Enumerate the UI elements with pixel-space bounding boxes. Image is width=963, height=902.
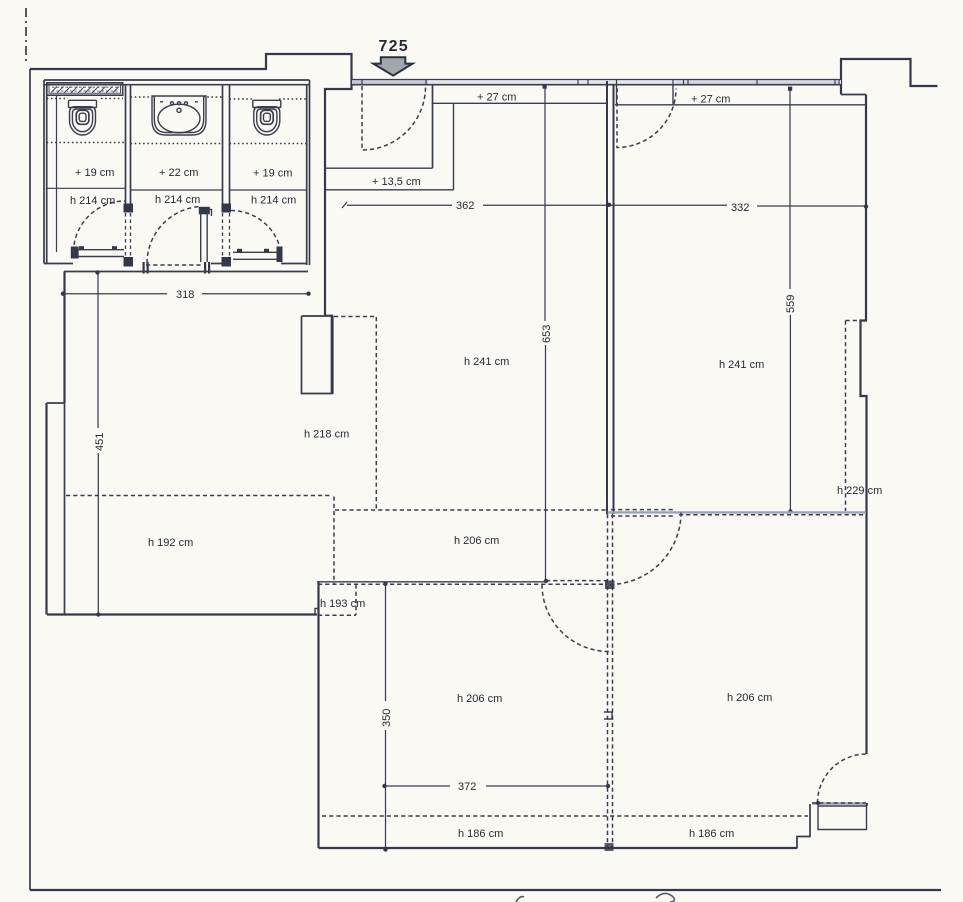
svg-text:372: 372 xyxy=(458,781,476,793)
svg-text:h 206 cm: h 206 cm xyxy=(457,693,502,705)
svg-text:362: 362 xyxy=(456,200,474,212)
svg-text:318: 318 xyxy=(176,289,194,301)
svg-text:559: 559 xyxy=(785,295,797,313)
svg-text:h 214 cm: h 214 cm xyxy=(70,195,115,207)
svg-text:h 241 cm: h 241 cm xyxy=(464,356,509,368)
svg-text:451: 451 xyxy=(94,433,106,451)
svg-text:h 193 cm: h 193 cm xyxy=(320,598,365,610)
svg-text:h 192 cm: h 192 cm xyxy=(148,537,193,549)
svg-text:h 206 cm: h 206 cm xyxy=(727,692,772,704)
svg-text:h 214 cm: h 214 cm xyxy=(155,194,200,206)
svg-text:h 214 cm: h 214 cm xyxy=(251,195,296,207)
svg-text:h 186 cm: h 186 cm xyxy=(689,828,734,840)
svg-text:+ 19 cm: + 19 cm xyxy=(75,167,114,179)
svg-text:+ 19 cm: + 19 cm xyxy=(253,168,292,180)
svg-text:h 206 cm: h 206 cm xyxy=(454,535,499,547)
svg-text:+ 27 cm: + 27 cm xyxy=(477,92,516,104)
svg-text:h 218 cm: h 218 cm xyxy=(304,429,349,441)
svg-text:+ 27 cm: + 27 cm xyxy=(691,94,730,106)
svg-text:h 241 cm: h 241 cm xyxy=(719,359,764,371)
svg-text:350: 350 xyxy=(381,709,393,727)
svg-text:332: 332 xyxy=(731,202,749,214)
svg-text:725: 725 xyxy=(379,38,409,55)
svg-text:h 229 cm: h 229 cm xyxy=(837,485,882,497)
svg-text:653: 653 xyxy=(541,325,553,343)
svg-text:h 186 cm: h 186 cm xyxy=(458,828,503,840)
svg-text:+ 13,5 cm: + 13,5 cm xyxy=(372,176,421,188)
svg-text:+ 22 cm: + 22 cm xyxy=(159,167,198,179)
